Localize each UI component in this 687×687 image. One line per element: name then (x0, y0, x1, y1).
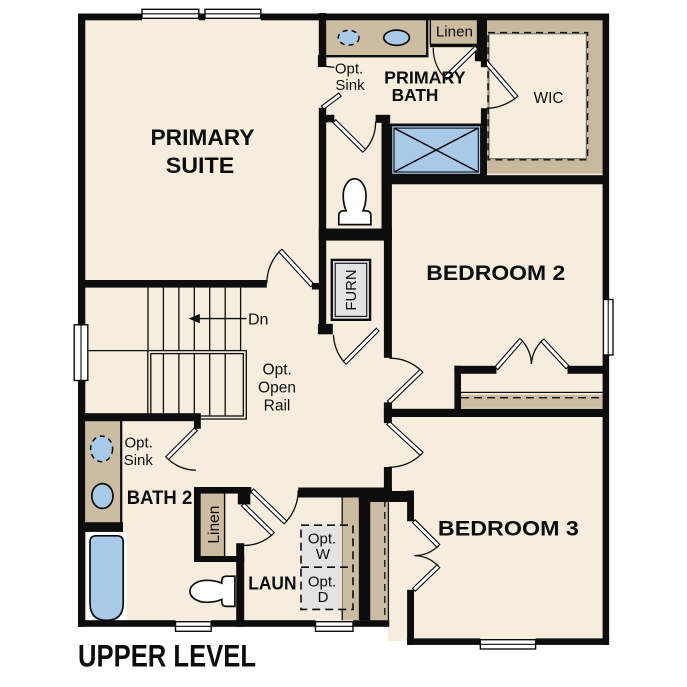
svg-text:Opt.: Opt. (308, 530, 336, 547)
svg-text:WIC: WIC (534, 90, 564, 107)
svg-text:SUITE: SUITE (166, 153, 235, 178)
svg-text:Linen: Linen (206, 506, 223, 544)
svg-text:W: W (316, 546, 331, 563)
svg-text:BATH: BATH (392, 85, 439, 105)
svg-text:Rail: Rail (264, 398, 291, 415)
svg-text:PRIMARY: PRIMARY (151, 125, 255, 150)
svg-text:Linen: Linen (436, 24, 473, 41)
svg-text:Opt.: Opt. (263, 361, 292, 378)
svg-text:D: D (318, 589, 329, 606)
svg-text:Opt.: Opt. (125, 434, 153, 451)
svg-text:Opt.: Opt. (308, 574, 336, 591)
svg-text:BEDROOM 2: BEDROOM 2 (426, 261, 565, 285)
svg-text:UPPER LEVEL: UPPER LEVEL (78, 638, 256, 674)
svg-text:Sink: Sink (335, 77, 365, 94)
svg-text:Sink: Sink (124, 452, 154, 469)
svg-text:Dn: Dn (248, 312, 268, 329)
svg-text:BATH 2: BATH 2 (127, 488, 193, 509)
svg-text:LAUN: LAUN (248, 572, 296, 593)
svg-text:Open: Open (258, 380, 296, 397)
svg-text:BEDROOM 3: BEDROOM 3 (438, 516, 579, 540)
svg-text:FURN: FURN (344, 269, 360, 310)
svg-text:Opt.: Opt. (335, 61, 363, 78)
